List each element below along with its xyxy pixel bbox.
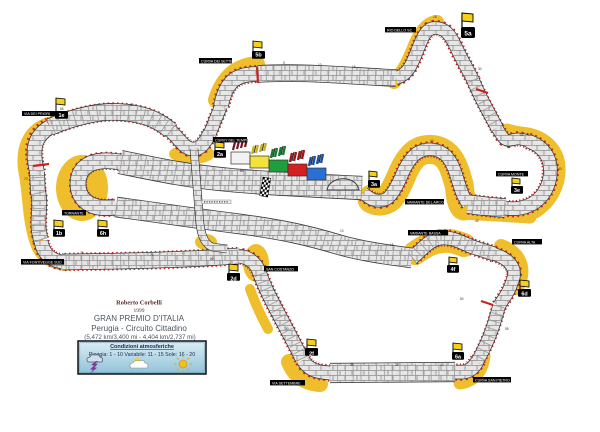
svg-text:Pioggia: 1 - 10 Variabile: 1: Pioggia: 1 - 10 Variabile: 11 - 15 Sole:…: [89, 352, 195, 358]
svg-text:55: 55: [505, 327, 509, 331]
svg-text:30: 30: [478, 67, 482, 71]
svg-text:50: 50: [460, 297, 464, 301]
svg-text:70: 70: [24, 177, 28, 181]
svg-text:VARIANTE BASSA: VARIANTE BASSA: [410, 231, 441, 235]
svg-text:GRAN PREMIO D'ITALIA: GRAN PREMIO D'ITALIA: [94, 314, 185, 323]
svg-text:60: 60: [130, 103, 134, 107]
svg-text:6d: 6d: [521, 292, 527, 298]
svg-text:78: 78: [150, 253, 154, 257]
svg-text:TORNANTE: TORNANTE: [64, 211, 84, 215]
svg-text:40: 40: [430, 139, 434, 143]
svg-text:5a: 5a: [464, 31, 472, 38]
svg-text:5b: 5b: [255, 53, 262, 59]
svg-text:CURVA MONTE: CURVA MONTE: [498, 172, 525, 176]
svg-text:3a: 3a: [371, 182, 378, 188]
svg-text:80: 80: [210, 257, 214, 261]
svg-text:CURVY DEL TEMPIO: CURVY DEL TEMPIO: [215, 138, 250, 142]
svg-text:6h: 6h: [100, 231, 106, 237]
svg-text:40: 40: [558, 167, 562, 171]
svg-text:10: 10: [340, 229, 344, 233]
svg-text:2f: 2f: [309, 351, 314, 357]
svg-text:VIA DEI PRIORI: VIA DEI PRIORI: [24, 112, 50, 116]
svg-text:2a: 2a: [217, 152, 224, 158]
svg-text:(5,472 km/3,400 mi - 4,404 km/: (5,472 km/3,400 mi - 4,404 km/2,737 mi): [84, 334, 195, 341]
svg-text:25: 25: [433, 15, 437, 19]
svg-text:4f: 4f: [451, 267, 456, 273]
svg-text:40: 40: [440, 363, 444, 367]
svg-text:75: 75: [80, 251, 84, 255]
svg-text:RIO DELLO SC: RIO DELLO SC: [387, 28, 413, 32]
svg-text:65: 65: [60, 107, 64, 111]
svg-text:3e: 3e: [514, 188, 520, 194]
svg-text:VIA SETTEMBRE: VIA SETTEMBRE: [272, 381, 301, 385]
svg-text:15: 15: [390, 243, 394, 247]
svg-text:15: 15: [352, 65, 356, 69]
svg-text:80: 80: [240, 169, 244, 173]
svg-text:CURVA DEI SETTE: CURVA DEI SETTE: [201, 59, 233, 63]
svg-text:10: 10: [318, 63, 322, 67]
svg-text:1e: 1e: [59, 113, 65, 119]
svg-text:Perugia - Circuito Cittadino: Perugia - Circuito Cittadino: [91, 324, 187, 333]
svg-text:CURVA SAN PIETRO: CURVA SAN PIETRO: [475, 378, 510, 382]
svg-text:45: 45: [475, 219, 479, 223]
svg-text:Condizioni atmosferiche: Condizioni atmosferiche: [110, 344, 174, 350]
svg-text:5: 5: [283, 61, 285, 65]
svg-text:CURVA ALTA: CURVA ALTA: [514, 240, 536, 244]
svg-text:VARIANTE DEL ARCO: VARIANTE DEL ARCO: [407, 200, 444, 204]
svg-text:30: 30: [285, 327, 289, 331]
svg-text:35: 35: [350, 363, 354, 367]
svg-text:SAN COSTANZO: SAN COSTANZO: [266, 267, 294, 271]
svg-text:Roberto Corbelli: Roberto Corbelli: [116, 300, 162, 307]
svg-text:35: 35: [520, 133, 524, 137]
svg-text:1b: 1b: [56, 231, 63, 237]
svg-text:2d: 2d: [230, 276, 236, 282]
svg-text:VIA FONTIVEGGE SUD: VIA FONTIVEGGE SUD: [23, 261, 62, 265]
svg-text:38: 38: [395, 363, 399, 367]
svg-text:6a: 6a: [455, 355, 462, 361]
